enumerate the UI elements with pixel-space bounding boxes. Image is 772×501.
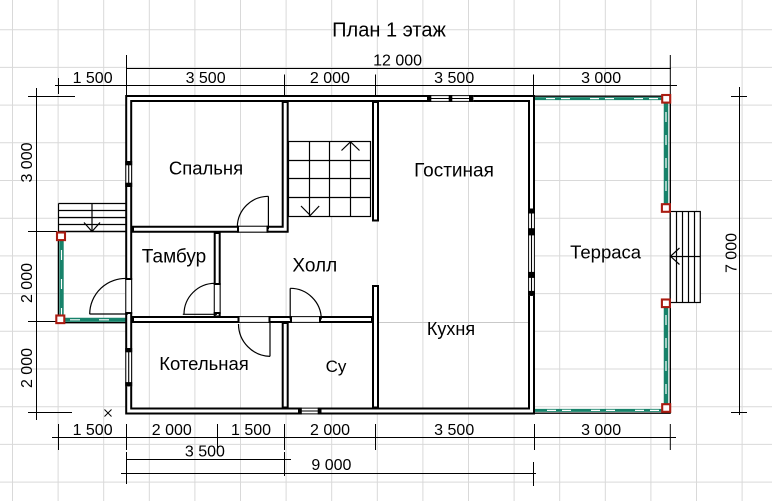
- svg-text:3 500: 3 500: [434, 70, 474, 87]
- svg-text:Су: Су: [326, 357, 347, 376]
- svg-text:3 500: 3 500: [434, 422, 474, 439]
- svg-text:Холл: Холл: [292, 256, 337, 277]
- svg-text:1 500: 1 500: [73, 422, 113, 439]
- svg-text:Тамбур: Тамбур: [142, 247, 207, 268]
- svg-text:1 500: 1 500: [231, 422, 271, 439]
- svg-text:2 000: 2 000: [19, 263, 36, 303]
- svg-text:2 000: 2 000: [19, 348, 36, 388]
- svg-text:Терраса: Терраса: [570, 242, 642, 263]
- svg-text:3 000: 3 000: [19, 142, 36, 182]
- svg-text:3 000: 3 000: [581, 70, 621, 87]
- svg-text:2 000: 2 000: [152, 422, 192, 439]
- svg-text:3 000: 3 000: [581, 422, 621, 439]
- svg-text:2 000: 2 000: [310, 70, 350, 87]
- svg-text:Гостиная: Гостиная: [414, 161, 494, 182]
- svg-text:Кухня: Кухня: [427, 319, 475, 339]
- svg-text:3 500: 3 500: [185, 444, 225, 461]
- svg-text:12 000: 12 000: [373, 53, 422, 70]
- svg-text:7 000: 7 000: [724, 233, 741, 273]
- svg-text:9 000: 9 000: [311, 457, 351, 474]
- svg-text:2 000: 2 000: [310, 422, 350, 439]
- svg-text:План 1 этаж: План 1 этаж: [332, 20, 446, 42]
- svg-text:1 500: 1 500: [73, 70, 113, 87]
- svg-text:Спальня: Спальня: [169, 158, 243, 179]
- svg-text:Котельная: Котельная: [159, 353, 249, 374]
- svg-text:3 500: 3 500: [186, 70, 226, 87]
